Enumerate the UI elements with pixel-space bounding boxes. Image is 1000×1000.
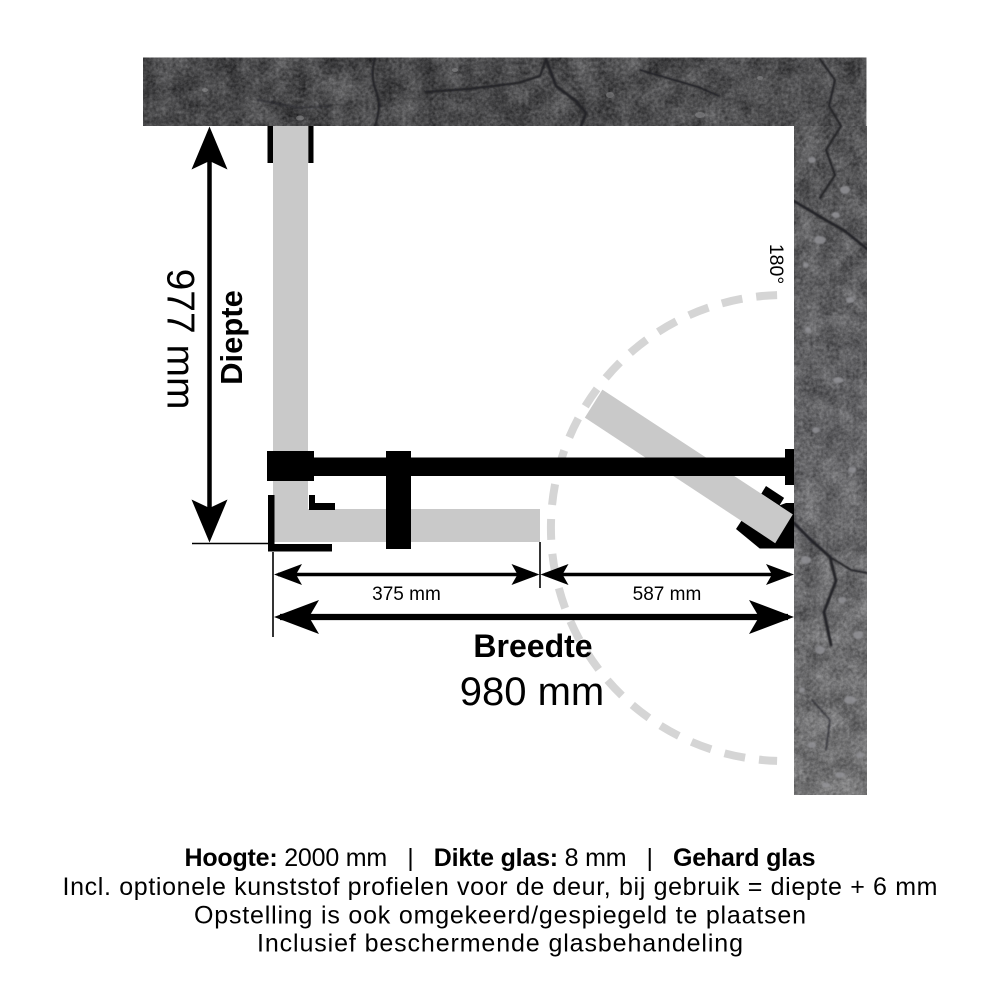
svg-text:Diepte: Diepte — [214, 290, 249, 385]
svg-text:Hoogte: 2000 mm | Dikte gl: Hoogte: 2000 mm | Dikte glas: 8 mm | Geh… — [185, 844, 816, 872]
svg-text:Breedte: Breedte — [473, 628, 592, 664]
svg-text:Incl. optionele kunststof prof: Incl. optionele kunststof profielen voor… — [63, 873, 938, 901]
svg-text:587 mm: 587 mm — [633, 584, 702, 605]
svg-text:980 mm: 980 mm — [460, 670, 605, 714]
svg-text:Opstelling is ook omgekeerd/ge: Opstelling is ook omgekeerd/gespiegeld t… — [194, 902, 806, 930]
svg-text:180°: 180° — [765, 244, 787, 284]
svg-text:977 mm: 977 mm — [159, 269, 202, 410]
svg-text:Inclusief beschermende glasbeh: Inclusief beschermende glasbehandeling — [257, 930, 743, 958]
svg-text:375 mm: 375 mm — [372, 584, 441, 605]
